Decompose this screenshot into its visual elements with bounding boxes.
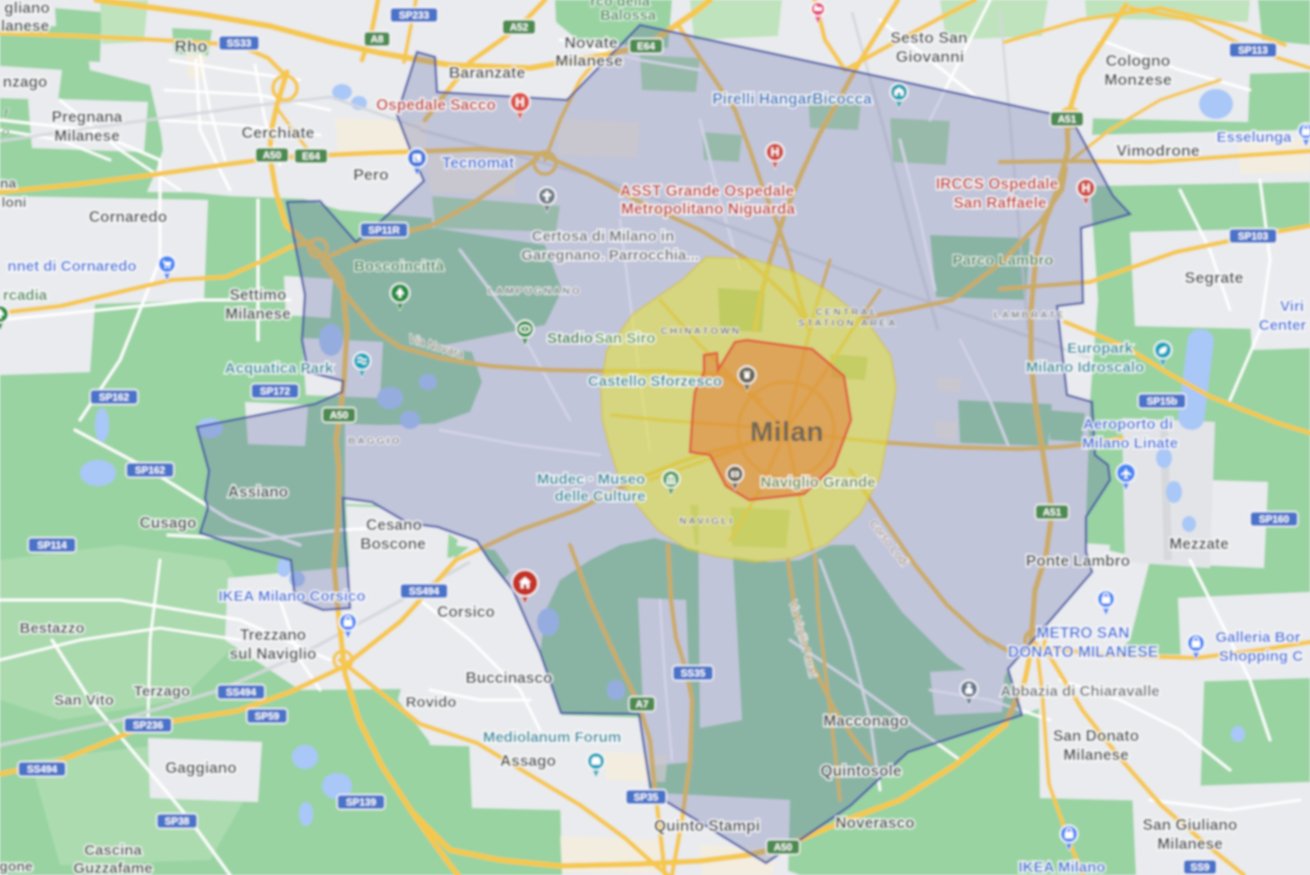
svg-text:A51: A51	[1058, 115, 1077, 126]
svg-text:Macconago: Macconago	[823, 713, 908, 730]
svg-text:A51: A51	[1043, 508, 1062, 519]
svg-text:SS9: SS9	[1191, 863, 1210, 874]
svg-text:H: H	[771, 145, 780, 159]
svg-text:Milano Linate: Milano Linate	[1082, 435, 1178, 452]
svg-text:SP113: SP113	[1238, 46, 1268, 57]
svg-text:Sesto San: Sesto San	[890, 30, 967, 47]
svg-text:Pero: Pero	[353, 167, 389, 184]
svg-text:A7: A7	[636, 700, 649, 711]
svg-text:loni: loni	[2, 194, 27, 210]
svg-text:METRO SAN: METRO SAN	[1037, 625, 1130, 642]
svg-text:Guzzafame: Guzzafame	[73, 860, 152, 875]
svg-text:SP233: SP233	[399, 11, 429, 22]
svg-text:SS494: SS494	[226, 688, 256, 699]
svg-text:delle Culture: delle Culture	[555, 488, 646, 505]
svg-text:Bestazzo: Bestazzo	[19, 620, 84, 637]
svg-text:Buccinasco: Buccinasco	[465, 670, 552, 687]
svg-text:H: H	[1082, 181, 1091, 195]
svg-text:Cusago: Cusago	[140, 515, 197, 532]
svg-text:NAVIGLI: NAVIGLI	[679, 516, 734, 527]
svg-text:Tecnomat: Tecnomat	[442, 155, 514, 172]
svg-text:Corsico: Corsico	[437, 604, 495, 621]
svg-text:DONATO MILANESE: DONATO MILANESE	[1008, 644, 1158, 661]
svg-text:Stadio: Stadio	[547, 330, 593, 347]
svg-text:BAGGIO: BAGGIO	[348, 436, 402, 447]
svg-text:San Vito: San Vito	[54, 692, 114, 709]
svg-text:Segrate: Segrate	[1185, 270, 1244, 287]
svg-text:SP103: SP103	[1238, 232, 1268, 243]
svg-text:Assago: Assago	[500, 753, 556, 770]
svg-text:Mudec · Museo: Mudec · Museo	[537, 471, 645, 488]
svg-text:gliano: gliano	[4, 0, 50, 17]
svg-text:Milan: Milan	[750, 416, 824, 447]
svg-text:Pregnana: Pregnana	[52, 109, 123, 126]
svg-text:Boscoincittà: Boscoincittà	[354, 258, 445, 275]
svg-text:Pirelli HangarBicocca: Pirelli HangarBicocca	[712, 91, 872, 108]
svg-text:Cerchiate: Cerchiate	[242, 125, 315, 142]
svg-text:SS35: SS35	[681, 669, 706, 680]
svg-text:Cesano: Cesano	[366, 517, 422, 534]
svg-text:IKEA Milano Corsico: IKEA Milano Corsico	[219, 588, 366, 605]
svg-text:Ponte Lambro: Ponte Lambro	[1026, 553, 1130, 570]
svg-text:Ospedale Sacco: Ospedale Sacco	[376, 97, 496, 114]
svg-text:Cornaredo: Cornaredo	[89, 209, 167, 226]
svg-text:Esselunga: Esselunga	[1216, 129, 1292, 146]
svg-text:Abbazia di Chiaravalle: Abbazia di Chiaravalle	[1000, 683, 1159, 700]
svg-text:Baranzate: Baranzate	[449, 65, 526, 82]
svg-text:San Raffaele: San Raffaele	[953, 195, 1046, 212]
svg-text:SS494: SS494	[409, 587, 439, 598]
svg-text:Viri: Viri	[1280, 298, 1304, 315]
svg-text:E64: E64	[302, 152, 320, 163]
svg-text:sul Naviglio: sul Naviglio	[230, 646, 317, 663]
svg-text:SS494: SS494	[27, 765, 57, 776]
svg-text:A50: A50	[263, 151, 282, 162]
svg-text:A50: A50	[330, 411, 349, 422]
svg-text:lanese: lanese	[1, 18, 50, 35]
svg-text:SP160: SP160	[1259, 515, 1289, 526]
svg-text:Boscone: Boscone	[360, 536, 426, 553]
svg-text:L: L	[415, 154, 420, 163]
svg-text:LAMPUGNANO: LAMPUGNANO	[488, 286, 582, 297]
svg-text:Milanese: Milanese	[225, 306, 291, 323]
svg-text:Milanese: Milanese	[1157, 836, 1223, 853]
svg-text:o: o	[2, 124, 9, 139]
svg-text:Cascina: Cascina	[84, 842, 142, 859]
svg-text:Acquatica Park: Acquatica Park	[225, 360, 334, 377]
svg-text:CHINATOWN: CHINATOWN	[661, 326, 742, 337]
svg-text:Milanese: Milanese	[54, 128, 120, 145]
svg-text:Settimo: Settimo	[230, 287, 287, 304]
svg-text:IRCCS Ospedale: IRCCS Ospedale	[936, 176, 1059, 193]
svg-text:Metropolitano Niguarda: Metropolitano Niguarda	[621, 201, 795, 218]
svg-text:nzago: nzago	[3, 74, 48, 91]
svg-text:Mezzate: Mezzate	[1169, 536, 1229, 553]
svg-text:E64: E64	[637, 42, 655, 53]
svg-text:Rovido: Rovido	[406, 694, 457, 711]
svg-text:nnet di Cornaredo: nnet di Cornaredo	[7, 258, 136, 275]
svg-text:SP38: SP38	[165, 817, 190, 828]
svg-text:Mediolanum Forum: Mediolanum Forum	[483, 729, 621, 746]
svg-text:Naviglio Grande: Naviglio Grande	[760, 474, 875, 491]
svg-text:Balossa: Balossa	[600, 8, 657, 24]
svg-text:Novate: Novate	[564, 35, 617, 52]
svg-text:A50: A50	[774, 843, 793, 854]
svg-text:SP162: SP162	[135, 466, 165, 477]
svg-text:Quinto Stampi: Quinto Stampi	[654, 818, 760, 835]
svg-text:Rho: Rho	[174, 37, 207, 56]
svg-text:rcadia: rcadia	[3, 287, 48, 304]
svg-text:Milanese: Milanese	[1063, 747, 1129, 764]
svg-text:SP114: SP114	[37, 541, 67, 552]
svg-text:Milano Idroscalo: Milano Idroscalo	[1026, 359, 1144, 376]
svg-text:SP35: SP35	[634, 793, 659, 804]
svg-text:Vimodrone: Vimodrone	[1116, 143, 1199, 160]
svg-text:Castello Sforzesco: Castello Sforzesco	[588, 373, 722, 390]
svg-text:Cologno: Cologno	[1106, 53, 1171, 70]
svg-text:LAMBRATE: LAMBRATE	[994, 310, 1067, 321]
svg-text:Aeroporto di: Aeroporto di	[1083, 416, 1173, 433]
svg-text:Milanese: Milanese	[555, 53, 623, 70]
svg-text:SP11R: SP11R	[368, 226, 400, 237]
svg-text:SS33: SS33	[227, 39, 252, 50]
svg-text:Assiano: Assiano	[228, 484, 288, 501]
svg-text:A52: A52	[510, 23, 529, 34]
svg-text:Certosa di Milano in: Certosa di Milano in	[532, 228, 675, 245]
svg-text:San Siro: San Siro	[595, 330, 656, 347]
svg-text:Gaggiano: Gaggiano	[165, 760, 236, 777]
svg-text:na: na	[0, 175, 16, 191]
svg-text:gone: gone	[0, 858, 33, 874]
svg-text:Europark: Europark	[1067, 340, 1134, 357]
svg-text:SP15b: SP15b	[1147, 397, 1178, 408]
svg-text:A8: A8	[371, 35, 384, 46]
svg-text:Noverasco: Noverasco	[835, 815, 914, 832]
svg-text:SP162: SP162	[99, 393, 129, 404]
svg-text:IKEA Milano: IKEA Milano	[1019, 859, 1106, 875]
svg-text:Galleria Bor: Galleria Bor	[1215, 629, 1300, 646]
svg-text:SP139: SP139	[346, 798, 376, 809]
svg-text:Parco Lambro: Parco Lambro	[953, 252, 1054, 269]
svg-text:Quintosole: Quintosole	[821, 763, 902, 780]
svg-text:San Donato: San Donato	[1053, 728, 1139, 745]
svg-text:Garegnano. Parrocchia...: Garegnano. Parrocchia...	[521, 247, 699, 264]
svg-text:SP172: SP172	[260, 387, 290, 398]
svg-text:Shopping C: Shopping C	[1219, 648, 1303, 665]
svg-text:CENTRAL: CENTRAL	[816, 307, 879, 318]
svg-text:SP236: SP236	[133, 721, 163, 732]
svg-text:Giovanni: Giovanni	[896, 49, 964, 66]
svg-text:STATION AREA: STATION AREA	[798, 318, 898, 329]
svg-text:Terzago: Terzago	[134, 683, 190, 700]
svg-text:SP59: SP59	[255, 712, 280, 723]
svg-text:Trezzano: Trezzano	[240, 627, 306, 644]
svg-text:ASST Grande Ospedale: ASST Grande Ospedale	[620, 183, 794, 200]
svg-text:San Giuliano: San Giuliano	[1143, 817, 1238, 834]
svg-text:Monzese: Monzese	[1104, 72, 1172, 89]
svg-text:H: H	[515, 94, 524, 109]
svg-text:Center R: Center R	[1259, 317, 1310, 334]
